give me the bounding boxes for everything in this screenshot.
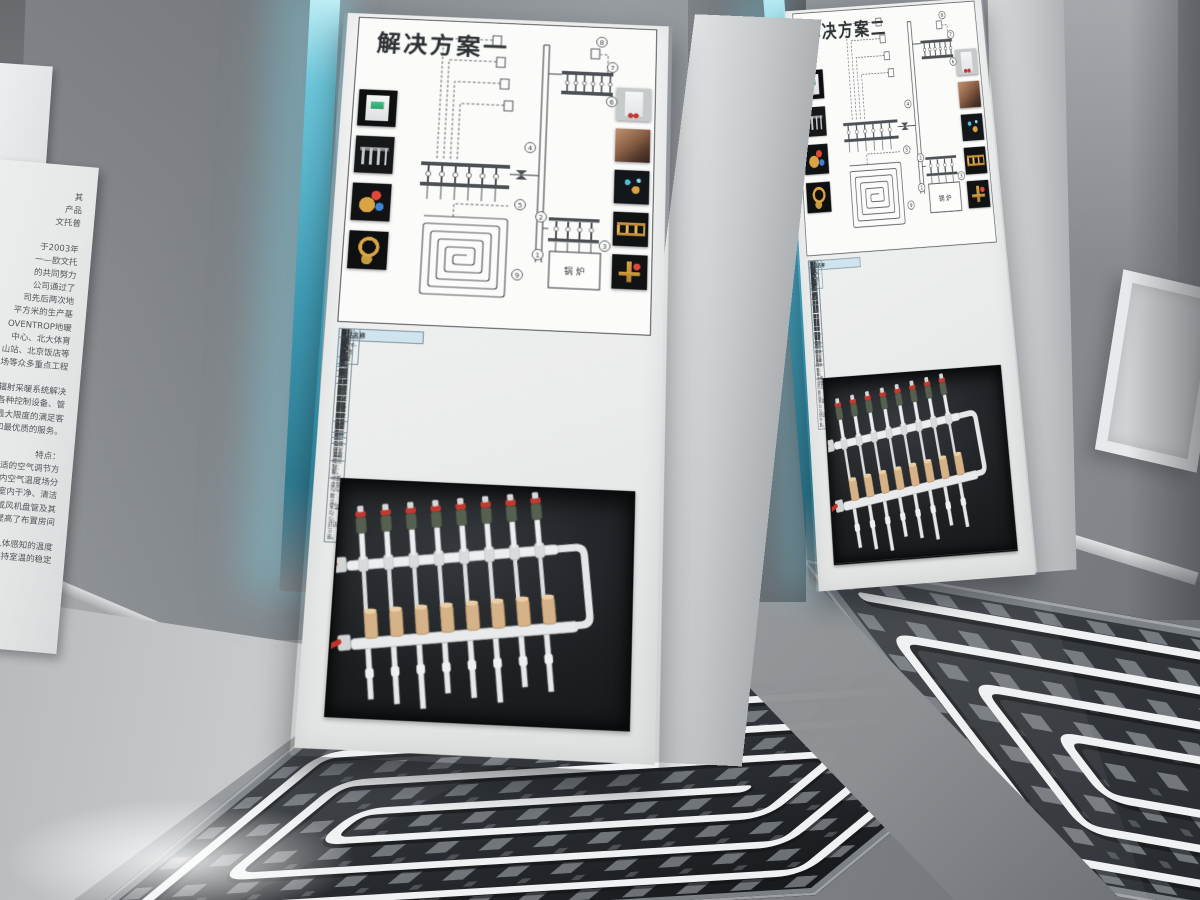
actuator-cap [541,597,556,625]
valve-group-photo-icon [967,180,991,209]
schematic-callout: 2 [539,213,544,221]
schematic-callout: 6 [609,98,613,106]
wall-boiler-photo-icon [616,88,651,122]
control-device-photo-icon [961,113,985,141]
actuator-cap [516,599,531,627]
actuator-cap [909,464,920,487]
brass-manifold-photo-icon [613,212,649,247]
schematic-callout: 3 [960,173,963,180]
schematic-callout: 2 [919,155,922,162]
schematic-callout: 5 [518,201,523,209]
schematic-callout: 3 [602,243,607,251]
right-wall-shadow [1128,0,1200,620]
manifold-photo-photo-icon [354,135,395,173]
exhibition-scene: 其产品文托普于2003年一—欧文托的共同努力公司通过了司先后两次地平方米的生产基… [0,0,1200,900]
schematic-callout: 7 [610,64,614,72]
control-device-photo-icon [614,170,650,205]
manifold-rail-top [834,412,961,450]
installation-photo-photo-icon [615,128,651,163]
schematic-callout: 7 [949,32,952,38]
actuator-cap [879,471,890,494]
actuator-cap [415,607,429,635]
installation-photo-photo-icon [958,81,981,109]
schematic-drawing: 锅 炉457682319 [413,30,618,302]
brass-ring-photo-icon [347,230,389,270]
thumbnail-column-left [347,89,398,270]
brass-ring-photo-icon [806,182,832,214]
brass-manifold-photo-icon [964,146,988,174]
schematic-callout: 9 [910,202,913,209]
actuator-cap [849,478,860,501]
manifold-assembly [326,489,597,716]
actuator-cap [364,611,378,639]
manifold-svg [824,366,1017,563]
manifold-elbow-pipe [558,547,590,626]
thermostat-photo-icon [357,89,398,127]
manifold-rail-top [346,545,559,571]
actuator-cap [954,453,965,476]
manifold-assembly [824,367,995,563]
actuator-cap [465,603,480,631]
schematic-callout: 4 [528,144,533,152]
manifold-display-box [324,478,635,732]
schematic-coil [850,162,906,227]
brass-valves-photo-icon [350,182,391,221]
schematic-callout: 6 [952,59,955,66]
boiler-label: 锅 炉 [564,265,585,278]
wall-boiler-photo-icon [955,48,978,75]
schematic-callout: 5 [905,147,908,154]
schematic-callout: 1 [535,251,540,259]
schematic-coil [419,216,507,298]
actuator-cap [939,457,950,480]
solution-board-1: 解决方案一 锅 炉457682319 编号产品名称产品描述1水力分离器安装于锅炉… [289,13,672,773]
boiler-label: 锅 炉 [939,193,952,203]
schematic-callout: 4 [906,101,909,108]
schematic-callout: 1 [920,185,923,192]
manifold-display-box [823,365,1018,566]
schematic-box: 解决方案二 锅 炉457682319 [792,1,997,257]
poster-1: 解决方案一 锅 炉457682319 编号产品名称产品描述1水力分离器安装于锅炉… [294,13,668,765]
piping-schematic-svg: 锅 炉457682319 [388,25,620,327]
floor-light-spot [0,755,470,900]
schematic-box: 解决方案一 锅 炉457682319 [337,17,657,336]
schematic-callout: 9 [515,271,520,279]
actuator-cap [864,475,875,498]
piping-schematic-svg: 锅 炉457682319 [822,7,973,248]
schematic-callout: 8 [600,39,604,47]
manifold-svg [326,480,633,729]
actuator-cap [389,609,403,637]
valve-group-photo-icon [611,254,647,290]
actuator-cap [924,460,935,483]
actuator-cap [491,601,506,629]
schematic-callout: 8 [941,13,944,19]
actuator-cap [894,468,905,491]
actuator-cap [440,605,455,633]
schematic-drawing: 锅 炉457682319 [836,10,970,227]
